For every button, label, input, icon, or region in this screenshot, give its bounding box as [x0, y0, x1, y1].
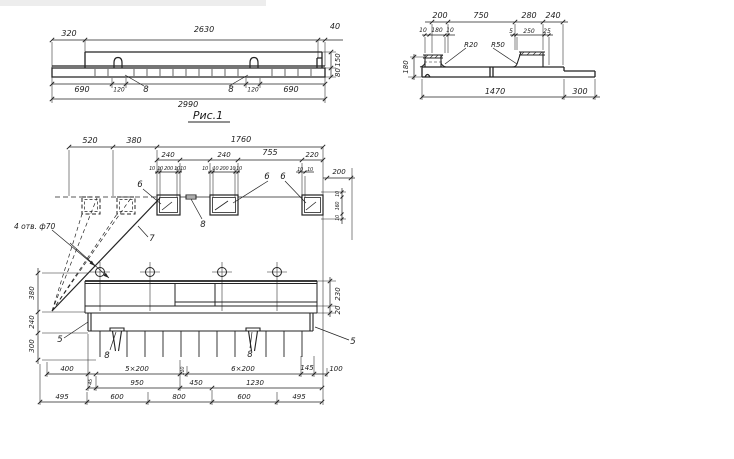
- dim-label: 10: [149, 166, 155, 172]
- dim-label: 10: [307, 167, 313, 173]
- dim-label: 120: [247, 87, 259, 94]
- dim-label: 230: [334, 287, 342, 301]
- scan-artifact: [0, 0, 266, 6]
- dim-label: 145: [300, 364, 314, 372]
- dim-label: 110: [180, 367, 186, 376]
- dim-label: 25: [543, 28, 551, 35]
- dim-label: 5×200: [125, 365, 149, 373]
- dim-label: 45: [88, 379, 94, 385]
- dim-label: 600: [110, 393, 124, 401]
- dim-label: 160: [335, 202, 341, 211]
- dim-label: 10: [297, 167, 303, 173]
- dim-label-total: 2990: [178, 100, 198, 109]
- figure-caption: Рис.1: [193, 109, 223, 122]
- dim-label: 300: [28, 339, 36, 353]
- technical-drawing: 320 2630 40 150 80 690 120 8 8 120 690 2…: [0, 0, 734, 459]
- dim-label: 1470: [485, 87, 505, 96]
- radius-label: R50: [491, 41, 505, 49]
- position-label-6: 6: [137, 180, 143, 190]
- dim-label: 400: [60, 365, 74, 373]
- position-label-7: 7: [149, 234, 155, 244]
- dim-label: 2630: [194, 25, 214, 34]
- radius-label: R20: [464, 41, 478, 49]
- dim-label: 800: [172, 393, 186, 401]
- position-label-8: 8: [143, 85, 149, 95]
- position-label-5: 5: [57, 335, 62, 345]
- dim-label: 300: [572, 87, 587, 96]
- dim-label: 690: [74, 85, 89, 94]
- dim-label: 10 200 10: [213, 166, 236, 172]
- dim-label: 180: [402, 60, 410, 74]
- position-label-6: 6: [280, 172, 286, 182]
- position-label-6: 6: [264, 172, 270, 182]
- dim-label: 950: [130, 379, 144, 387]
- dim-label: 5: [509, 28, 513, 35]
- dim-label: 240: [28, 315, 36, 329]
- dim-label: 10: [180, 166, 186, 172]
- dim-label: 10: [236, 166, 242, 172]
- dim-label: 6×200: [231, 365, 255, 373]
- dim-label: 150: [334, 53, 342, 67]
- dim-label: 200: [332, 168, 346, 176]
- dim-label: 495: [292, 393, 306, 401]
- position-label-8: 8: [247, 350, 253, 360]
- dim-label: 690: [283, 85, 298, 94]
- dim-label: 1760: [231, 135, 251, 144]
- dim-label: 10: [335, 191, 341, 197]
- dim-label: 80: [334, 68, 342, 77]
- dim-label: 240: [161, 151, 175, 159]
- dim-label: 100: [329, 365, 343, 373]
- dim-label: 180: [431, 27, 443, 34]
- dim-label: 10: [419, 27, 427, 34]
- drawing-sheet: 320 2630 40 150 80 690 120 8 8 120 690 2…: [0, 0, 734, 459]
- paper: [0, 0, 734, 459]
- dim-label: 10: [446, 27, 454, 34]
- dim-label: 495: [55, 393, 69, 401]
- position-label-8: 8: [200, 220, 206, 230]
- dim-label: 600: [237, 393, 251, 401]
- dim-label: 220: [305, 151, 319, 159]
- dim-label: 755: [262, 148, 277, 157]
- dim-label: 20: [334, 305, 342, 314]
- dim-label: 40: [330, 22, 340, 31]
- dim-label: 10: [335, 215, 341, 221]
- holes-note: 4 отв. ф70: [14, 222, 55, 231]
- dim-label: 250: [523, 28, 535, 35]
- dim-label: 10 200 10: [157, 166, 180, 172]
- dim-label: 520: [82, 136, 97, 145]
- position-label-8: 8: [104, 351, 110, 361]
- dim-label: 280: [521, 11, 536, 20]
- dim-label: 380: [126, 136, 141, 145]
- dim-label: 240: [217, 151, 231, 159]
- dim-label: 750: [473, 11, 488, 20]
- dim-label: 1230: [246, 379, 264, 387]
- dim-label: 120: [113, 87, 125, 94]
- dim-label: 240: [545, 11, 560, 20]
- dim-label: 380: [28, 286, 36, 300]
- position-label-5: 5: [350, 337, 355, 347]
- dim-label: 320: [61, 29, 76, 38]
- dim-label: 10: [202, 166, 208, 172]
- dim-label: 200: [432, 11, 447, 20]
- position-label-8: 8: [228, 85, 234, 95]
- dim-label: 450: [189, 379, 203, 387]
